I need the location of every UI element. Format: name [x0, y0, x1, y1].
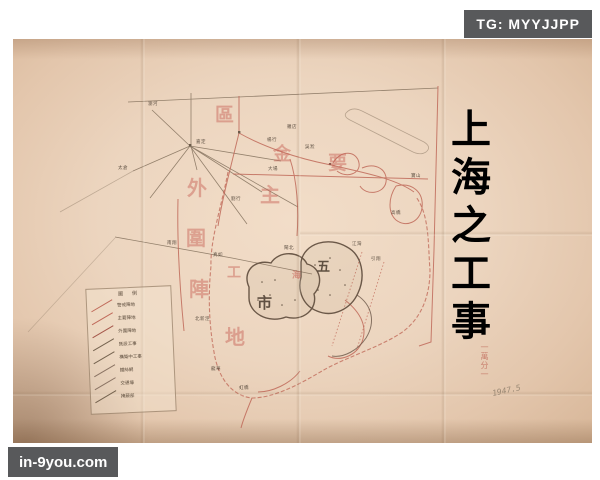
town-label: 寶山: [411, 175, 421, 180]
legend-line-symbol: [93, 351, 115, 365]
town-label: 楊行: [267, 139, 277, 144]
fold-crease-horizontal: [300, 231, 592, 236]
legend-row: 既設工事: [91, 335, 169, 351]
legend-label: 主要陣地: [117, 314, 135, 321]
town-label: 太倉: [118, 167, 128, 172]
legend-header: 圖 例: [89, 288, 167, 298]
town-label: 瀏河: [148, 103, 158, 108]
legend-row: 主要陣地: [90, 309, 168, 325]
town-label: 南翔: [167, 242, 177, 247]
legend-row: 交通壕: [93, 374, 171, 390]
overprint-char: 市: [257, 296, 272, 311]
town-label: 北新涇: [195, 318, 210, 323]
town-label: 高橋: [391, 212, 401, 217]
legend-line-symbol: [91, 299, 113, 313]
river-island-outline: [345, 109, 428, 154]
town-label: 羅店: [287, 126, 297, 131]
pencil-roads: [28, 88, 438, 332]
map-layer: 區金要外主圍工陣地五市海 瀏河嘉定太倉羅店楊行吳淞寶山大場劉行南翔真如江灣閘北引…: [13, 39, 592, 443]
legend-line-symbol: [95, 377, 117, 391]
legend-line-symbol: [94, 364, 116, 378]
overprint-char: 五: [317, 261, 330, 274]
legend-label: 交通壕: [120, 379, 134, 386]
fold-crease-vertical: [296, 39, 301, 443]
site-watermark: in-9you.com: [8, 447, 118, 477]
red-border-line: [419, 86, 438, 346]
fold-crease-horizontal: [13, 391, 592, 396]
town-label: 嘉定: [196, 141, 206, 146]
map-side-title: 上海之工事: [447, 108, 487, 358]
overprint-char: 主: [260, 185, 280, 205]
town-label: 引翔: [371, 258, 381, 263]
legend-row: 構築中工事: [92, 348, 170, 364]
legend-line-symbol: [92, 325, 114, 339]
town-label: 吳淞: [305, 146, 315, 151]
overprint-char: 要: [328, 154, 347, 173]
town-label: 劉行: [231, 198, 241, 203]
map-linework: [13, 39, 592, 443]
town-label: 閘北: [284, 247, 294, 252]
fold-crease-vertical: [441, 39, 446, 443]
city-stipple-dots: [189, 131, 346, 306]
legend-line-symbol: [92, 312, 114, 326]
town-label: 真如: [213, 254, 223, 259]
overprint-char: 區: [215, 106, 234, 125]
legend-row: 警戒陣地: [90, 296, 168, 312]
city-area-outlines: [247, 242, 362, 319]
legend-box: 圖 例 警戒陣地主要陣地外圍陣地既設工事構築中工事鐵絲網交通壕掩蔽部: [85, 285, 176, 415]
town-label: 龍華: [211, 368, 221, 373]
overprint-char: 圍: [186, 228, 206, 248]
screenshot-stage: 區金要外主圍工陣地五市海 瀏河嘉定太倉羅店楊行吳淞寶山大場劉行南翔真如江灣閘北引…: [0, 0, 600, 480]
legend-label: 構築中工事: [119, 353, 142, 360]
legend-label: 鐵絲網: [120, 366, 134, 373]
legend-row: 掩蔽部: [94, 387, 172, 403]
handwritten-date-note: 1947.5: [491, 383, 521, 398]
map-photo: 區金要外主圍工陣地五市海 瀏河嘉定太倉羅店楊行吳淞寶山大場劉行南翔真如江灣閘北引…: [13, 39, 592, 443]
legend-rows: 警戒陣地主要陣地外圍陣地既設工事構築中工事鐵絲網交通壕掩蔽部: [90, 296, 172, 403]
red-roads: [178, 86, 438, 428]
overprint-char: 海: [292, 272, 301, 281]
legend-label: 掩蔽部: [121, 392, 135, 399]
fold-crease-vertical: [140, 39, 145, 443]
town-label: 江灣: [352, 243, 362, 248]
hatched-defense-lines: [332, 252, 384, 352]
legend-row: 鐵絲網: [93, 361, 171, 377]
overprint-char: 地: [225, 327, 245, 347]
overprint-char: 金: [273, 146, 291, 164]
town-label: 虹橋: [239, 387, 249, 392]
overprint-char: 外: [187, 178, 207, 198]
legend-label: 外圍陣地: [118, 327, 136, 334]
town-label: 大場: [268, 168, 278, 173]
river-line: [332, 295, 372, 356]
tg-badge: TG: MYYJJPP: [464, 10, 592, 38]
scale-note: 一萬分一: [479, 343, 490, 379]
legend-line-symbol: [95, 390, 117, 404]
legend-row: 外圍陣地: [91, 322, 169, 338]
legend-label: 既設工事: [119, 340, 137, 347]
legend-line-symbol: [93, 338, 115, 352]
overprint-char: 陣: [189, 279, 209, 299]
overprint-char: 工: [227, 266, 241, 280]
legend-label: 警戒陣地: [117, 301, 135, 308]
defense-perimeter: [209, 172, 430, 398]
